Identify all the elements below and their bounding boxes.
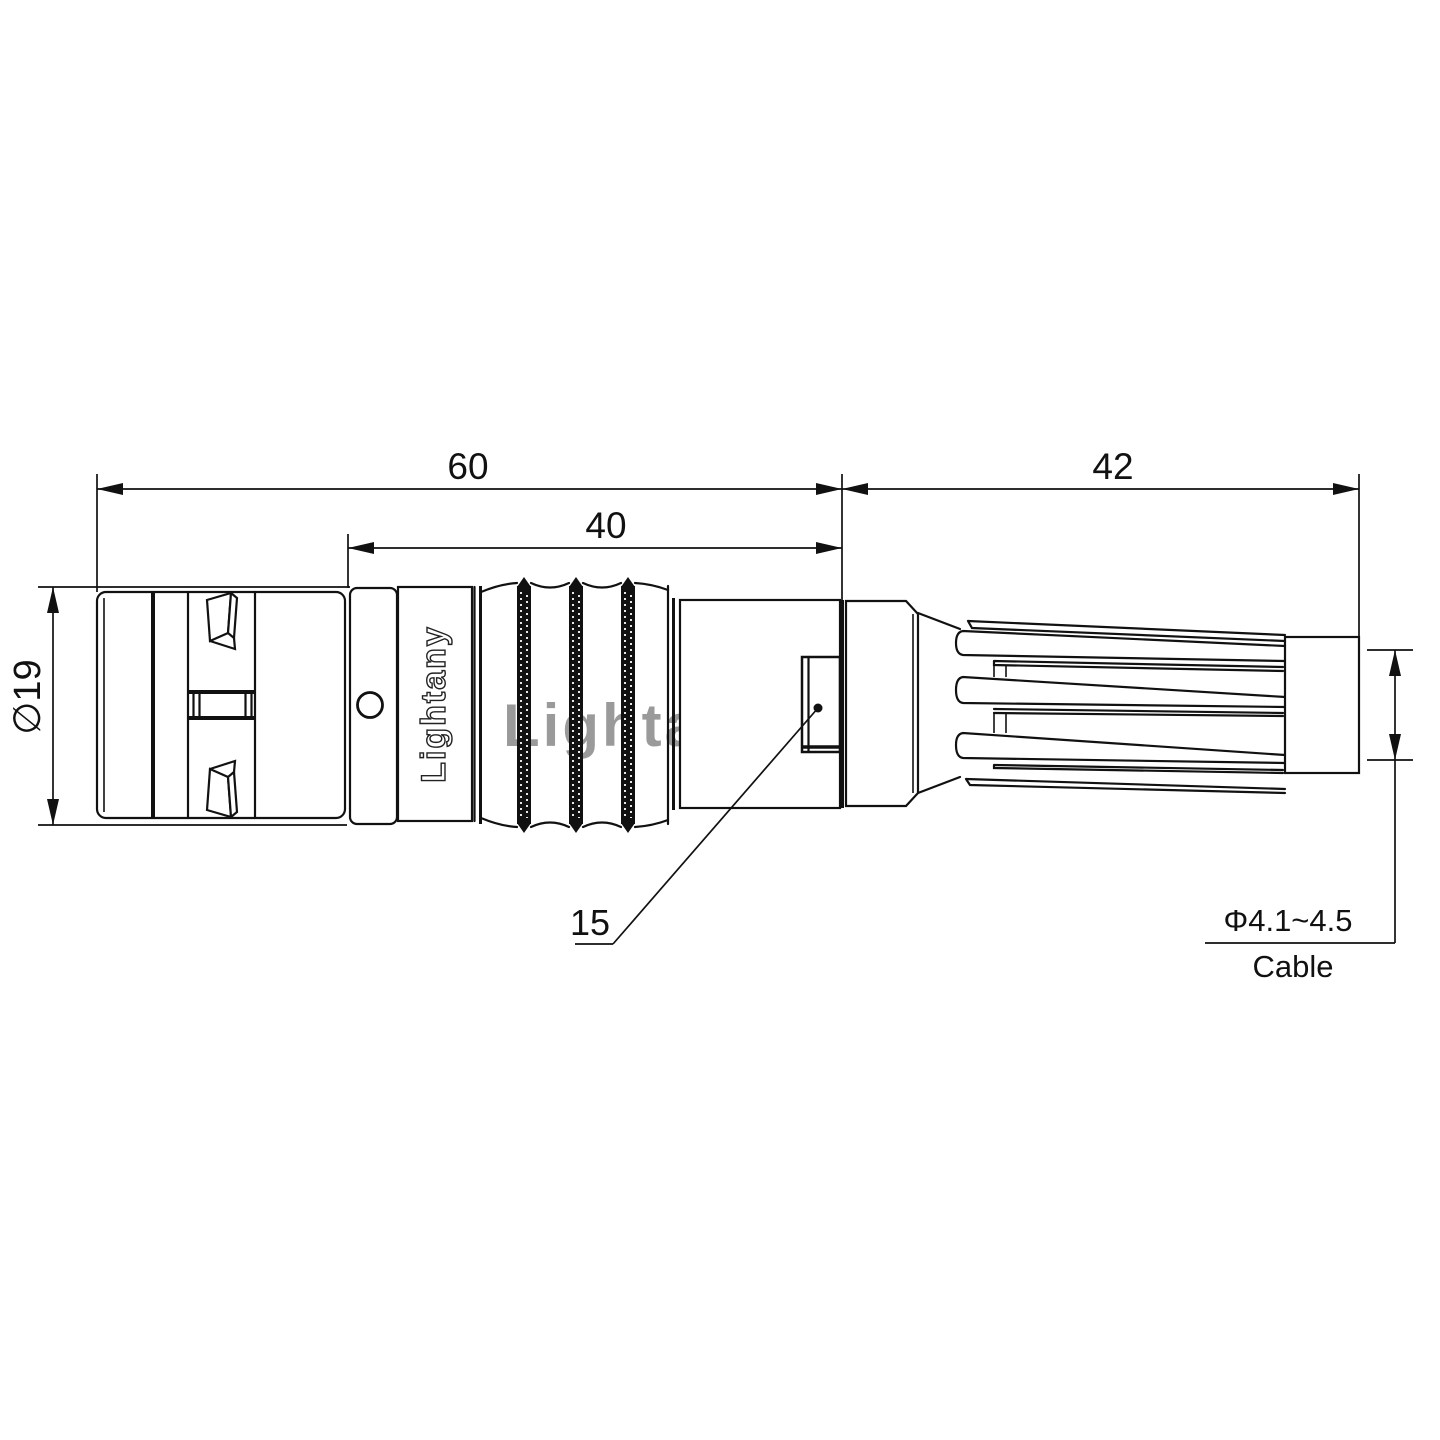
connector-dimension-drawing: Lightany bbox=[0, 0, 1440, 1440]
dim-15-label: 15 bbox=[570, 902, 610, 943]
engraved-brand-text: Lightany bbox=[415, 625, 453, 783]
knurl-band bbox=[621, 577, 635, 833]
end-cap bbox=[846, 601, 918, 806]
cable-stub bbox=[1285, 637, 1359, 773]
brand-sleeve: Lightany bbox=[398, 587, 472, 821]
dim-rear-length: 42 bbox=[842, 446, 1359, 495]
dim-40-label: 40 bbox=[585, 505, 626, 546]
front-barrel bbox=[97, 592, 345, 818]
dim-overall-length: 60 bbox=[97, 446, 842, 495]
dim-42-label: 42 bbox=[1092, 446, 1133, 487]
knurl-band bbox=[569, 577, 583, 833]
cable-diameter-label: Φ4.1~4.5 bbox=[1223, 903, 1352, 938]
strain-relief bbox=[918, 613, 1285, 793]
dim-front-body-length: 40 bbox=[348, 505, 842, 554]
dim-60-label: 60 bbox=[447, 446, 488, 487]
end-cap-outline bbox=[846, 601, 918, 806]
coupling-collar bbox=[350, 588, 397, 824]
knurl-band bbox=[517, 577, 531, 833]
leader-dot bbox=[814, 704, 823, 713]
dim-dia19-label: ∅19 bbox=[7, 659, 49, 734]
technical-drawing-page: Lightany bbox=[0, 0, 1440, 1440]
cable-caption-label: Cable bbox=[1253, 949, 1334, 984]
